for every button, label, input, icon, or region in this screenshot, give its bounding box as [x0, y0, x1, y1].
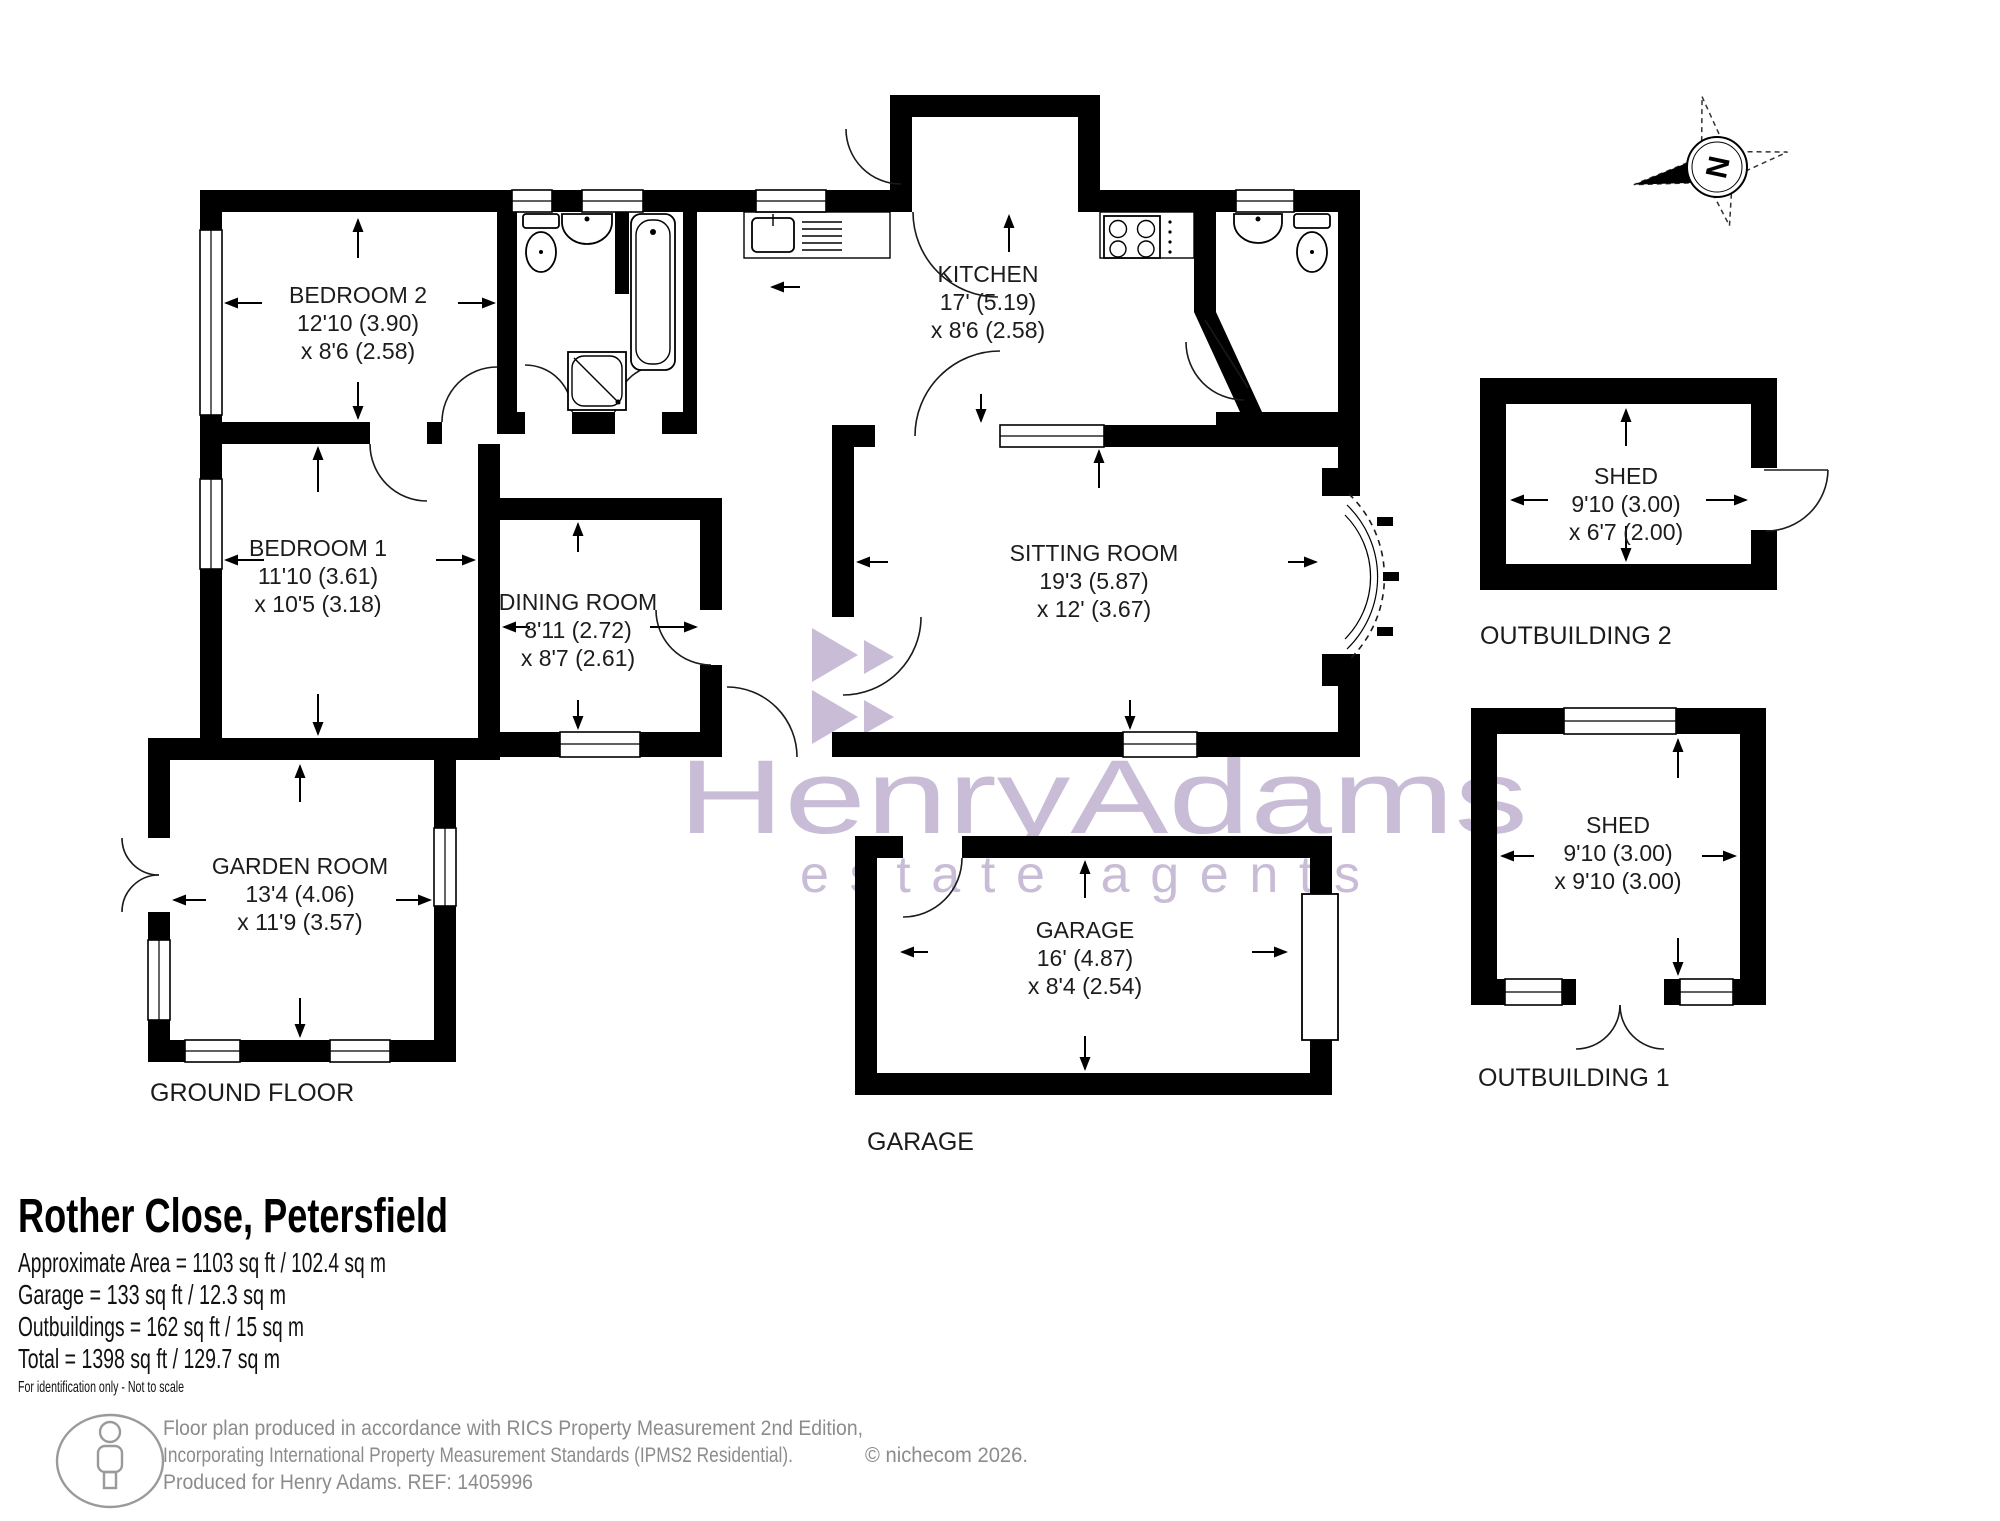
- total-area: Total = 1398 sq ft / 129.7 sq m: [18, 1343, 280, 1374]
- cloakroom-sink-icon: [1234, 214, 1282, 243]
- svg-text:11'10 (3.61): 11'10 (3.61): [258, 563, 378, 589]
- footer-line1: Floor plan produced in accordance with R…: [163, 1417, 863, 1440]
- garage-area: Garage = 133 sq ft / 12.3 sq m: [18, 1279, 286, 1310]
- bath-icon: [631, 214, 675, 370]
- identification-note: For identification only - Not to scale: [18, 1379, 184, 1396]
- garage-door: [1302, 894, 1338, 1040]
- kitchen-label: KITCHEN: [938, 261, 1039, 287]
- person-icon: [57, 1415, 163, 1507]
- page-title: Rother Close, Petersfield: [18, 1190, 448, 1243]
- svg-text:x 9'10 (3.00): x 9'10 (3.00): [1554, 868, 1681, 894]
- bedroom2-label: BEDROOM 2: [289, 282, 427, 308]
- svg-text:x 8'6 (2.58): x 8'6 (2.58): [301, 338, 415, 364]
- henry-adams-watermark: HenryAdams estate agents: [678, 628, 1528, 904]
- svg-text:x 12' (3.67): x 12' (3.67): [1037, 596, 1151, 622]
- svg-text:x 11'9 (3.57): x 11'9 (3.57): [237, 909, 362, 935]
- garage-room-label: GARAGE: [1036, 917, 1134, 943]
- ground-floor-label: GROUND FLOOR: [150, 1079, 354, 1107]
- sink-icon: [562, 214, 612, 244]
- bedroom1-label: BEDROOM 1: [249, 535, 387, 561]
- copyright: © nichecom 2026.: [865, 1444, 1028, 1467]
- cloakroom-toilet-icon: [1294, 214, 1330, 272]
- dining-room-label: DINING ROOM: [499, 589, 657, 615]
- kitchen-sink-unit-icon: [744, 212, 890, 258]
- svg-text:x 10'5 (3.18): x 10'5 (3.18): [254, 591, 381, 617]
- summary-block: Rother Close, Petersfield Approximate Ar…: [18, 1190, 448, 1396]
- footer-line3: Produced for Henry Adams. REF: 1405996: [163, 1471, 533, 1494]
- outbuilding2-label: OUTBUILDING 2: [1480, 622, 1672, 650]
- shed2-label: SHED: [1594, 463, 1658, 489]
- toilet-icon: [523, 214, 559, 272]
- hob-icon: [1100, 212, 1194, 258]
- footer-line2: Incorporating International Property Mea…: [163, 1444, 793, 1467]
- garage-label: GARAGE: [867, 1128, 974, 1156]
- bay-window: [1345, 494, 1399, 660]
- shed1-double-doors: [1576, 1005, 1664, 1049]
- svg-text:8'11 (2.72): 8'11 (2.72): [524, 617, 632, 643]
- svg-text:x 8'6 (2.58): x 8'6 (2.58): [931, 317, 1045, 343]
- approximate-area: Approximate Area = 1103 sq ft / 102.4 sq…: [18, 1247, 386, 1278]
- svg-text:9'10 (3.00): 9'10 (3.00): [1571, 491, 1680, 517]
- svg-text:16' (4.87): 16' (4.87): [1037, 945, 1133, 971]
- shower-icon: [568, 352, 626, 410]
- svg-text:x 6'7 (2.00): x 6'7 (2.00): [1569, 519, 1683, 545]
- svg-text:19'3 (5.87): 19'3 (5.87): [1039, 568, 1148, 594]
- floorplan-page: HenryAdams estate agents: [0, 0, 2000, 1521]
- compass-icon: N: [1619, 82, 1800, 244]
- outbuildings-area: Outbuildings = 162 sq ft / 15 sq m: [18, 1311, 304, 1342]
- svg-text:x 8'4 (2.54): x 8'4 (2.54): [1028, 973, 1142, 999]
- outbuilding1-label: OUTBUILDING 1: [1478, 1064, 1670, 1092]
- garden-room-label: GARDEN ROOM: [212, 853, 388, 879]
- footer: Floor plan produced in accordance with R…: [57, 1415, 1028, 1507]
- shed2-door: [1764, 470, 1828, 531]
- svg-text:13'4 (4.06): 13'4 (4.06): [245, 881, 354, 907]
- shed1-label: SHED: [1586, 812, 1650, 838]
- svg-text:17' (5.19): 17' (5.19): [940, 289, 1036, 315]
- svg-text:9'10 (3.00): 9'10 (3.00): [1563, 840, 1672, 866]
- svg-text:12'10 (3.90): 12'10 (3.90): [297, 310, 419, 336]
- sitting-room-label: SITTING ROOM: [1010, 540, 1179, 566]
- svg-text:x 8'7 (2.61): x 8'7 (2.61): [521, 645, 635, 671]
